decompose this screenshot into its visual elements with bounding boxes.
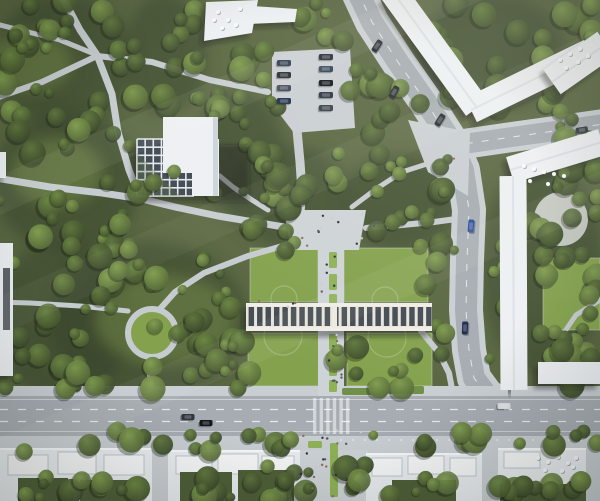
- scene-canvas: [0, 0, 600, 501]
- vignette: [0, 0, 600, 501]
- light-overlay: [0, 0, 600, 501]
- aerial-masterplan-rendering: [0, 0, 600, 501]
